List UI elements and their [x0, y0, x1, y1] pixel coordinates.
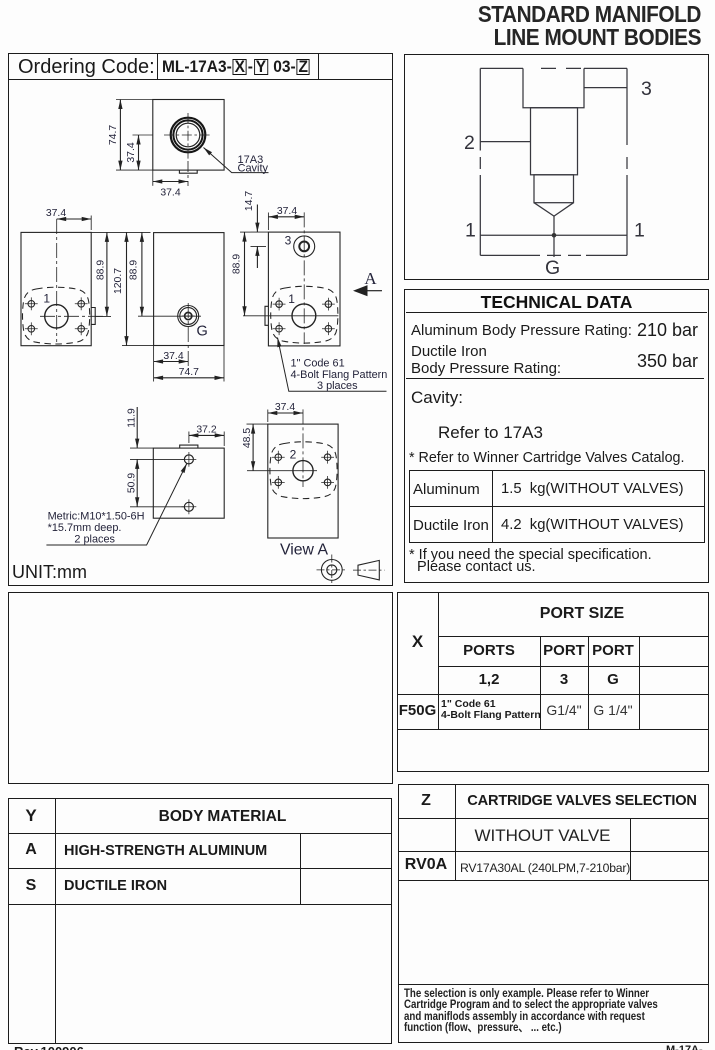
svg-text:37.4: 37.4 [160, 188, 180, 199]
svg-text:1" Code 61: 1" Code 61 [291, 358, 345, 370]
svg-text:37.4: 37.4 [126, 142, 137, 162]
svg-text:74.7: 74.7 [179, 367, 199, 378]
svg-text:48.5: 48.5 [242, 428, 253, 448]
svg-text:1: 1 [43, 292, 50, 306]
svg-text:74.7: 74.7 [108, 125, 119, 145]
svg-text:37.4: 37.4 [277, 206, 297, 217]
svg-text:G: G [197, 324, 208, 340]
svg-text:3: 3 [641, 78, 652, 100]
svg-text:*15.7mm deep.: *15.7mm deep. [48, 522, 122, 534]
svg-text:120.7: 120.7 [113, 268, 124, 294]
svg-text:Metric:M10*1.50-6H: Metric:M10*1.50-6H [48, 511, 145, 523]
svg-text:1: 1 [634, 220, 645, 242]
svg-text:11.9: 11.9 [126, 408, 137, 428]
svg-text:37.4: 37.4 [275, 402, 295, 413]
svg-text:50.9: 50.9 [126, 473, 137, 493]
svg-text:88.9: 88.9 [96, 260, 107, 280]
svg-text:G: G [545, 257, 560, 279]
svg-text:37.4: 37.4 [46, 208, 66, 219]
svg-text:1: 1 [288, 292, 295, 306]
svg-text:View A: View A [280, 542, 328, 559]
svg-text:37.2: 37.2 [196, 425, 216, 436]
svg-text:2 places: 2 places [74, 534, 115, 546]
svg-text:2: 2 [464, 132, 475, 154]
svg-text:88.9: 88.9 [232, 254, 243, 274]
svg-text:Cavity: Cavity [238, 163, 269, 175]
svg-text:A: A [364, 269, 377, 288]
svg-text:3: 3 [285, 234, 292, 248]
svg-text:14.7: 14.7 [244, 191, 255, 211]
svg-text:2: 2 [290, 448, 297, 462]
svg-text:37.4: 37.4 [163, 351, 183, 362]
svg-text:88.9: 88.9 [129, 260, 140, 280]
svg-text:1: 1 [465, 220, 476, 242]
svg-text:3 places: 3 places [317, 380, 358, 392]
